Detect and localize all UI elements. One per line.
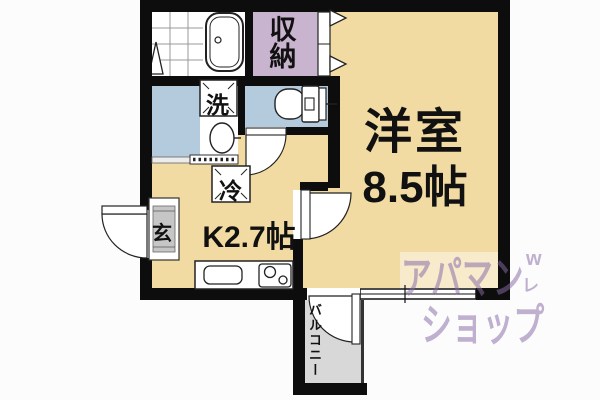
watermark-mark-bottom: レ: [522, 277, 539, 294]
watermark-line2: ショップ: [421, 304, 544, 348]
western-room-size-label: 8.5帖: [337, 151, 493, 215]
balcony-label: バルコニー: [305, 303, 324, 378]
floor-plan: 洋室 8.5帖 K2.7帖 収納 洗 冷 玄 バルコニー アパマン ショップ w…: [0, 0, 600, 400]
washroom-floor: [152, 86, 200, 158]
balcony-rail: [361, 300, 364, 383]
fridge-label: 冷: [219, 172, 242, 206]
watermark-mark-top: w: [526, 249, 542, 269]
kitchen-sink-icon: [204, 266, 242, 284]
entrance-door-swing-icon: [102, 206, 147, 258]
washer-label: 洗: [206, 86, 229, 120]
kitchen-label: K2.7帖: [188, 212, 310, 256]
kitchen-counter: [195, 261, 293, 289]
entrance-label: 玄: [152, 217, 172, 246]
watermark-line1: アパマン: [401, 257, 524, 301]
bathtub-icon: [206, 13, 243, 71]
stove-icon: [259, 264, 291, 287]
closet-label: 収納: [266, 15, 294, 69]
